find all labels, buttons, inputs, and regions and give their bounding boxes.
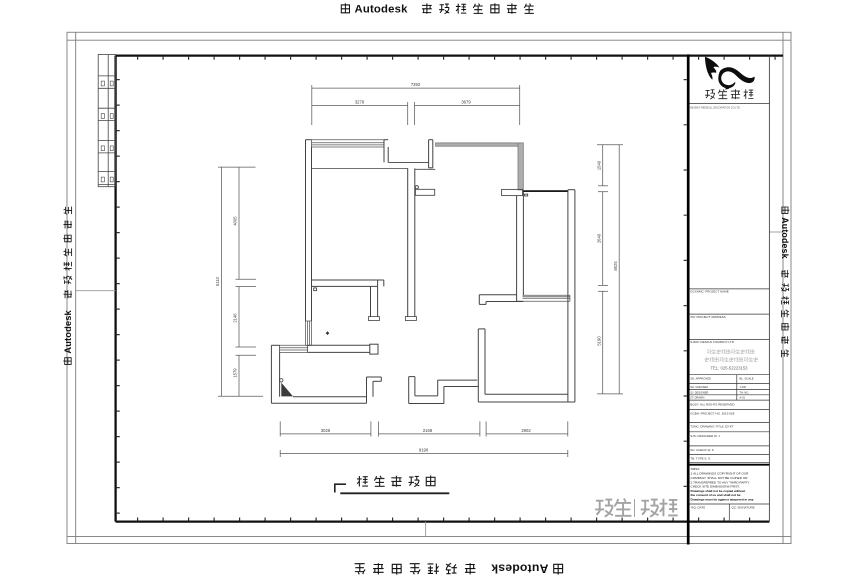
svg-text:RQ: DATE: RQ: DATE bbox=[691, 505, 705, 509]
svg-text:5190: 5190 bbox=[597, 336, 602, 346]
svg-text:9190: 9190 bbox=[419, 448, 429, 453]
svg-text:Drawings must be against tampe: Drawings must be against tampered in any bbox=[691, 498, 754, 502]
svg-text:6110: 6110 bbox=[215, 276, 220, 286]
svg-text:2146: 2146 bbox=[233, 313, 238, 323]
svg-text:A-01: A-01 bbox=[740, 396, 746, 400]
svg-text:TZMC: DRAWING TITLE JZYKT: TZMC: DRAWING TITLE JZYKT bbox=[690, 424, 734, 428]
svg-text:SH: CHECK W. K: SH: CHECK W. K bbox=[690, 448, 714, 452]
svg-text:2640: 2640 bbox=[597, 233, 602, 243]
svg-text:ZT: DRAWN: ZT: DRAWN bbox=[690, 396, 704, 400]
svg-text:COMPANY, SHALL NOT BE COPIED O: COMPANY, SHALL NOT BE COPIED OR bbox=[691, 476, 749, 480]
svg-text:BEIJING REDBULL DECORATION CO.: BEIJING REDBULL DECORATION CO.LTD bbox=[690, 105, 740, 109]
svg-text:1:100: 1:100 bbox=[740, 385, 747, 389]
svg-text:BQSY: ALL RIGHTS RESERVED: BQSY: ALL RIGHTS RESERVED bbox=[690, 403, 735, 407]
svg-text:1.ALL DRAWINGS COPYRIGHT OF OU: 1.ALL DRAWINGS COPYRIGHT OF OUR bbox=[691, 472, 750, 476]
svg-text:3279: 3279 bbox=[355, 99, 365, 104]
svg-text:QZ: SIGNATURE: QZ: SIGNATURE bbox=[732, 505, 755, 509]
svg-text:2168: 2168 bbox=[423, 428, 433, 433]
svg-text:1579: 1579 bbox=[233, 368, 238, 378]
svg-text:GCXHMC: PROJECT NAME: GCXHMC: PROJECT NAME bbox=[690, 290, 728, 294]
svg-text:1540: 1540 bbox=[597, 160, 602, 170]
svg-text:Autodesk: Autodesk bbox=[780, 217, 790, 258]
svg-text:SH: CHECKED: SH: CHECKED bbox=[690, 385, 708, 389]
svg-text:3679: 3679 bbox=[461, 99, 471, 104]
svg-text:3026: 3026 bbox=[321, 428, 331, 433]
svg-text:4005: 4005 bbox=[232, 216, 237, 226]
svg-text:TEL: 025-52223153: TEL: 025-52223153 bbox=[710, 365, 748, 370]
svg-text:TB: TYPE S. G: TB: TYPE S. G bbox=[690, 456, 711, 460]
svg-text:SJ: DESIGNER: SJ: DESIGNER bbox=[690, 390, 708, 394]
svg-text:Autodesk: Autodesk bbox=[63, 309, 73, 353]
svg-text:Autodesk: Autodesk bbox=[355, 4, 409, 16]
svg-text:SJDW: DESIGN COMPANY LTD: SJDW: DESIGN COMPANY LTD bbox=[690, 340, 734, 344]
svg-text:BL: SCALE: BL: SCALE bbox=[740, 377, 754, 381]
svg-text:TH: NO.: TH: NO. bbox=[740, 390, 750, 394]
svg-text:Autodesk: Autodesk bbox=[491, 562, 548, 576]
svg-text:7392: 7392 bbox=[411, 82, 421, 87]
svg-text:SMSX:: SMSX: bbox=[691, 467, 701, 471]
svg-text:XM: PROJECT ADDRESS: XM: PROJECT ADDRESS bbox=[690, 315, 725, 319]
svg-text:8525: 8525 bbox=[613, 261, 618, 271]
svg-text:SJS: DESIGNER W. J: SJS: DESIGNER W. J bbox=[690, 434, 720, 438]
svg-text:GCBH: PROJECT NO. 2013-028: GCBH: PROJECT NO. 2013-028 bbox=[690, 412, 734, 416]
svg-text:SD: APPROVED: SD: APPROVED bbox=[690, 377, 711, 381]
svg-text:2902: 2902 bbox=[521, 428, 531, 433]
